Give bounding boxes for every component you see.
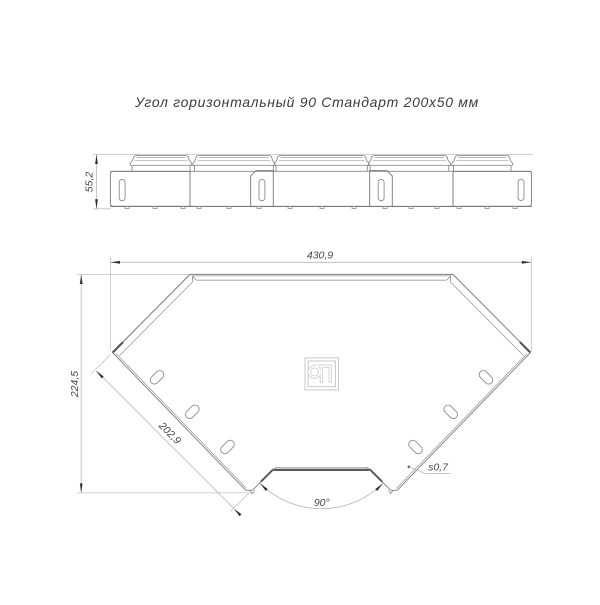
svg-text:Угол горизонтальный 90 Стандар: Угол горизонтальный 90 Стандарт 200х50 м…: [134, 94, 479, 110]
svg-text:90°: 90°: [314, 497, 330, 509]
svg-text:430,9: 430,9: [307, 250, 333, 262]
svg-text:s0,7: s0,7: [428, 462, 449, 474]
svg-text:55,2: 55,2: [84, 172, 96, 193]
svg-text:224,5: 224,5: [69, 371, 81, 398]
